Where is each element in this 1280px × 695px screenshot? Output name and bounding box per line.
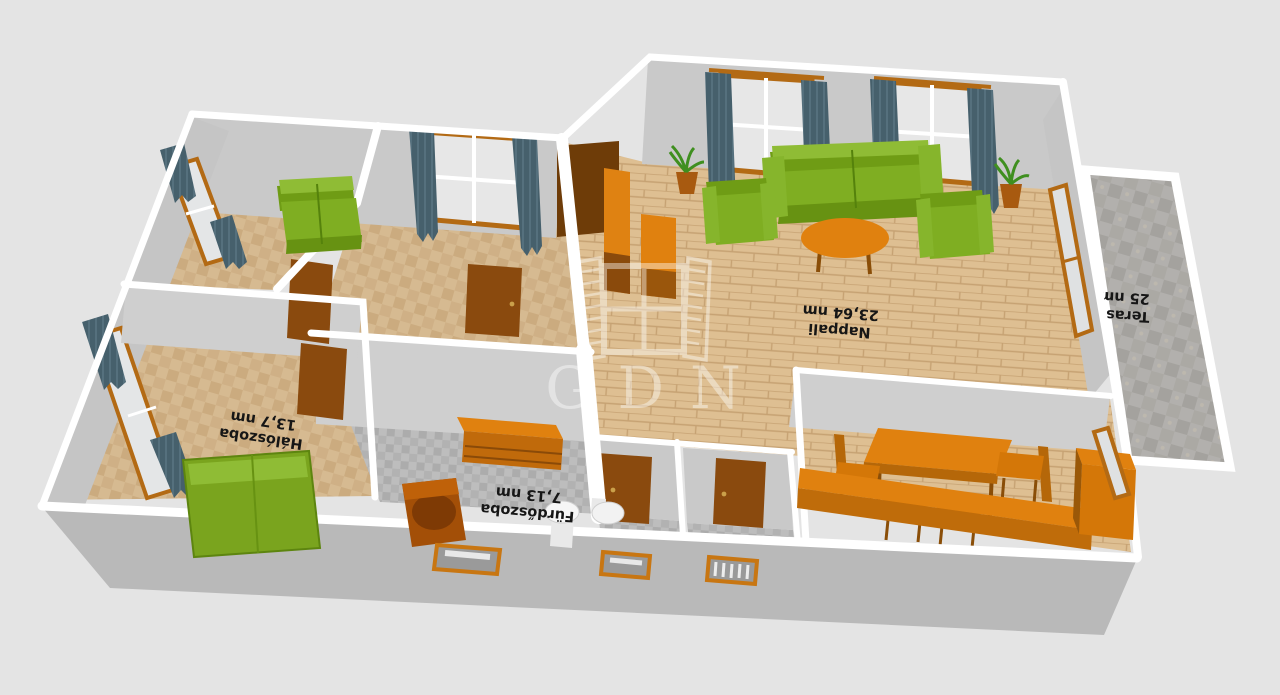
door-handle: [611, 488, 616, 493]
bed: [183, 451, 320, 557]
bathtub-brown: [402, 478, 466, 547]
wardrobe-base: [604, 252, 630, 294]
bathroom-cabinet: [457, 417, 563, 470]
tub-basin: [412, 494, 456, 530]
door-handle: [722, 492, 727, 497]
window-glass: [445, 553, 490, 557]
topmiddle-room-door: [465, 264, 522, 337]
window-glass: [610, 560, 642, 563]
stool-leg: [940, 526, 942, 546]
sofa-three-seat: [762, 140, 944, 224]
coffee-table-top: [801, 218, 889, 258]
stool-leg: [886, 520, 888, 540]
curtain-panel: [705, 72, 735, 193]
toilet-bowl: [592, 502, 624, 524]
floorplan-3d-render: Terasz 25 nm: [0, 0, 1280, 695]
wc-exterior-window: [601, 552, 650, 578]
armchair-left: [702, 178, 778, 245]
chair-seat: [996, 452, 1044, 480]
bathroom-exterior-window: [434, 545, 500, 574]
bedroom-door: [297, 343, 347, 420]
terrace-area: 25 nm: [1099, 288, 1150, 307]
armchair-right: [916, 190, 994, 259]
door-handle: [510, 302, 515, 307]
watermark-text: GDN: [545, 354, 767, 422]
storage-door: [713, 458, 766, 528]
floorplan-canvas: Terasz 25 nm: [0, 0, 1280, 695]
loveseat: [277, 176, 362, 254]
table-leg: [868, 252, 870, 274]
chair-leg: [1034, 480, 1036, 504]
